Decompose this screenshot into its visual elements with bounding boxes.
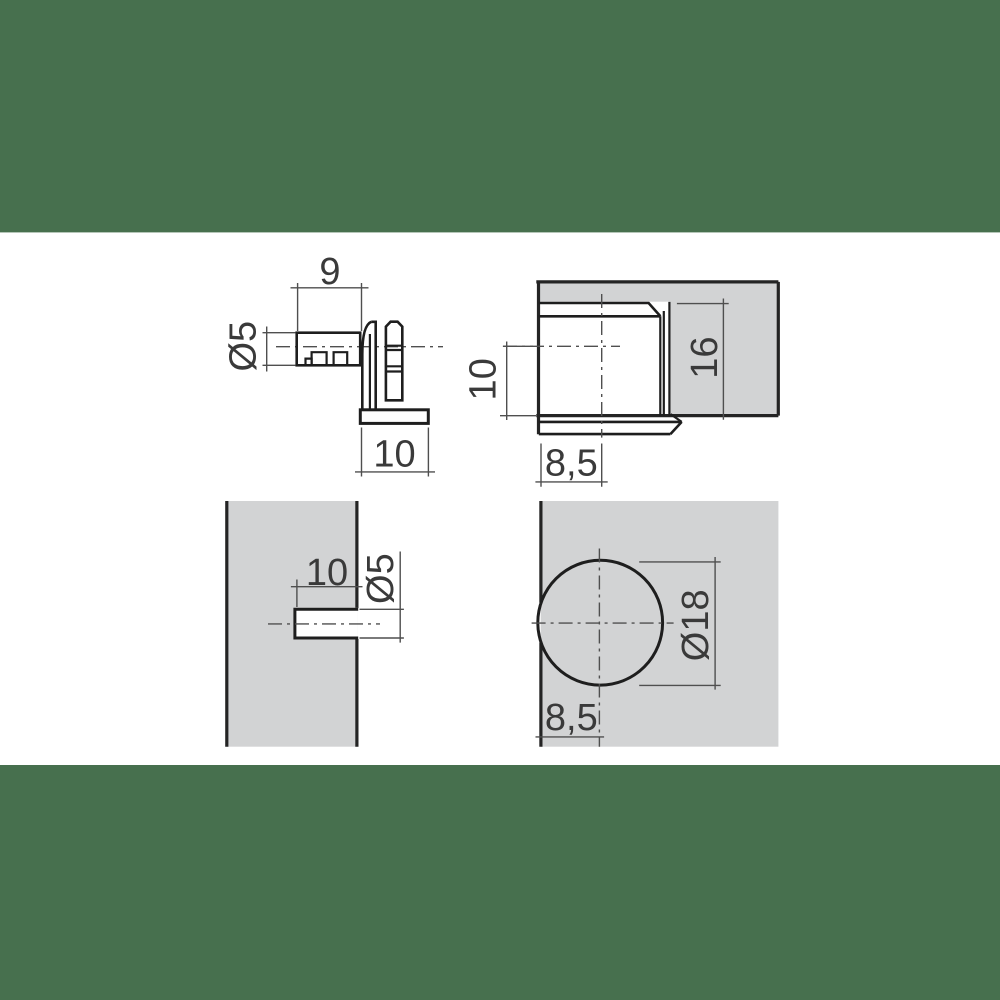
dim-label-edge-distance: 8,5 [545,442,598,484]
dim-label-inset-depth: 10 [462,358,504,400]
dim-label-hole-depth: 10 [306,552,348,594]
view-panel-hole-front: Ø18 8,5 [532,501,779,747]
dim-label-pin-diameter: Ø5 [222,321,264,372]
top-green-band [0,0,1000,232]
dim-label-bore-diameter: Ø18 [675,589,717,661]
dim-label-edge-distance: 8,5 [545,697,598,739]
dim-label-side-height: 16 [684,336,726,378]
technical-drawing: 9 Ø5 10 10 16 8,5 [0,0,1000,1000]
dim-label-pin-length: 9 [319,251,340,293]
bottom-green-band [0,765,1000,1000]
panel-cutout [539,302,670,416]
technical-drawing-page: 9 Ø5 10 10 16 8,5 [0,0,1000,1000]
dim-label-base-width: 10 [373,434,415,476]
dim-label-hole-diameter: Ø5 [360,553,402,604]
